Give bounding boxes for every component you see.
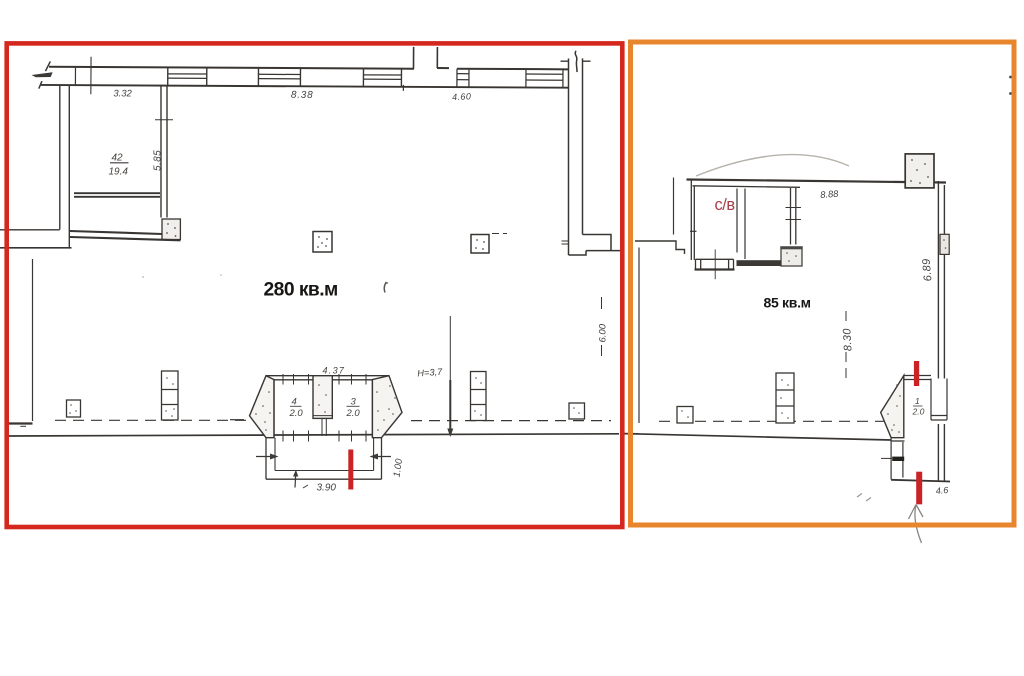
- svg-text:19.4: 19.4: [109, 167, 129, 178]
- svg-text:6.89: 6.89: [921, 258, 935, 282]
- svg-text:2.0: 2.0: [346, 408, 361, 419]
- svg-text:85 кв.м: 85 кв.м: [764, 295, 811, 311]
- svg-text:3.32: 3.32: [113, 88, 132, 99]
- svg-text:5.85: 5.85: [153, 150, 164, 171]
- svg-text:8.88: 8.88: [820, 189, 840, 200]
- svg-text:280 кв.м: 280 кв.м: [264, 280, 338, 301]
- svg-text:2.0: 2.0: [912, 407, 925, 417]
- svg-text:2.0: 2.0: [289, 408, 304, 419]
- svg-text:Н=3,7: Н=3,7: [417, 367, 444, 379]
- svg-text:6.00: 6.00: [598, 323, 609, 342]
- svg-text:4.60: 4.60: [452, 91, 472, 102]
- svg-text:3.90: 3.90: [317, 483, 337, 494]
- svg-text:42: 42: [112, 153, 124, 164]
- svg-text:1.00: 1.00: [392, 457, 406, 478]
- svg-text:с/в: с/в: [715, 196, 736, 214]
- svg-text:1: 1: [915, 396, 920, 406]
- svg-text:8.30: 8.30: [841, 327, 854, 351]
- svg-text:8.38: 8.38: [291, 90, 314, 101]
- svg-text:4.37: 4.37: [323, 366, 346, 376]
- svg-text:4.6: 4.6: [935, 485, 948, 496]
